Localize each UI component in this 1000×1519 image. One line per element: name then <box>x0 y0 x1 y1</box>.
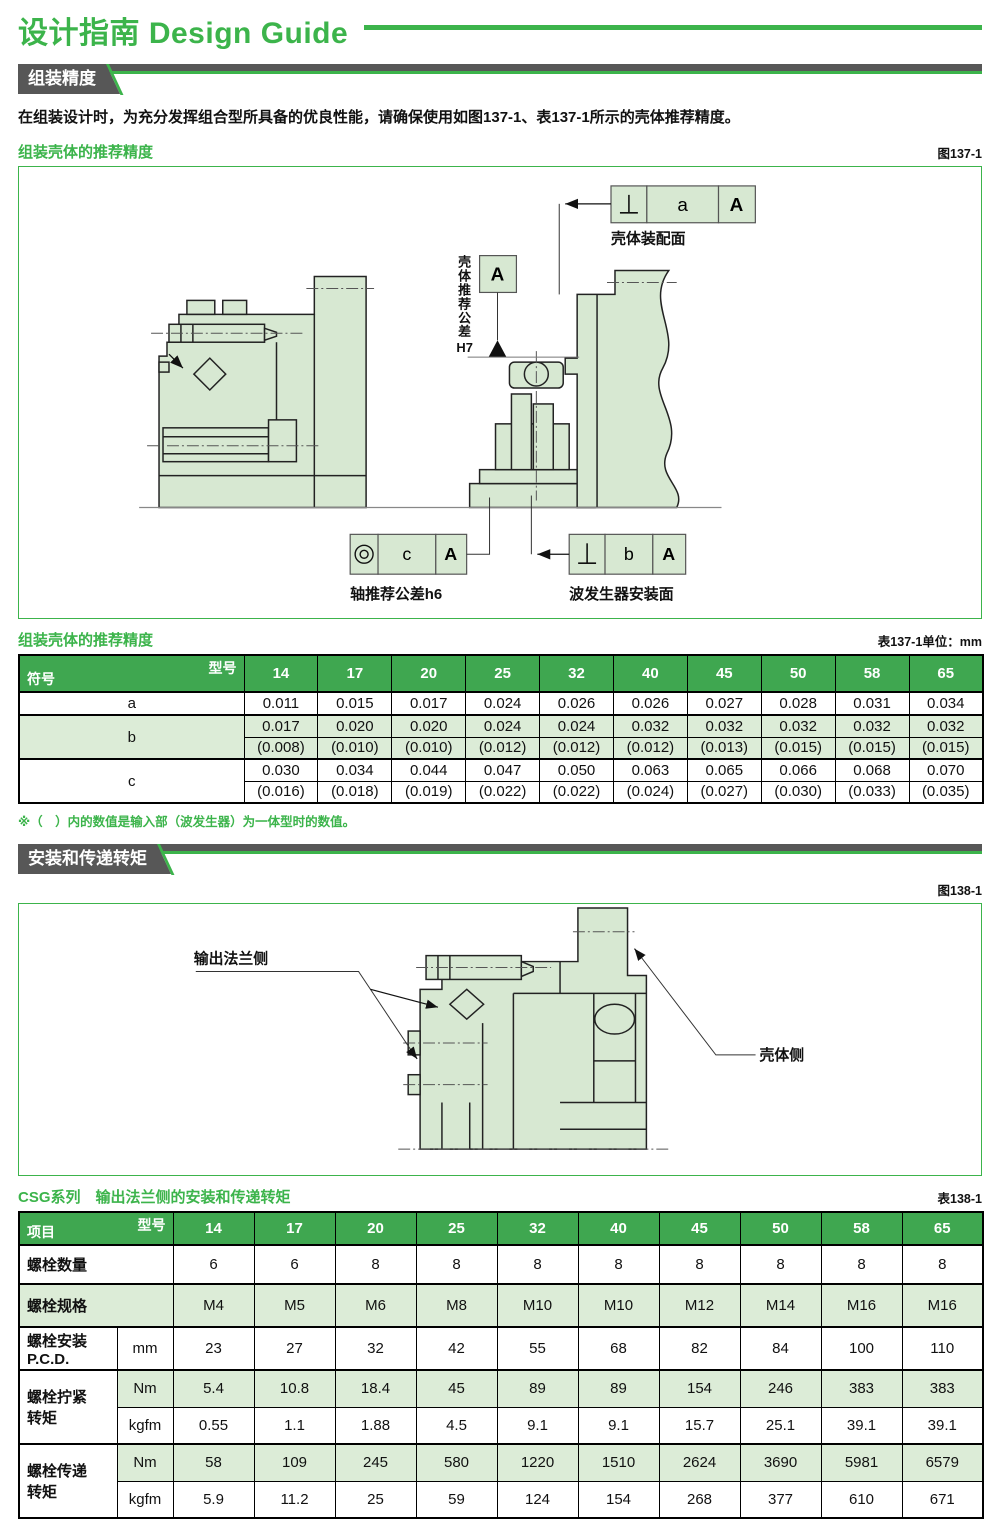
table-cell: kgfm <box>117 1407 173 1444</box>
figure137-box: a A 壳体装配面 A 壳体推荐公差 H7 c A 轴推荐公差h6 <box>18 166 982 619</box>
title-rule <box>364 25 982 30</box>
table-cell: 383 <box>821 1370 902 1407</box>
table-row: c0.0300.0340.0440.0470.0500.0630.0650.06… <box>19 759 983 781</box>
table-cell: 螺栓规格 <box>19 1284 173 1327</box>
table-row: 螺栓拧紧转矩Nm5.410.818.4458989154246383383 <box>19 1370 983 1407</box>
table-cell: 0.024 <box>540 715 614 737</box>
table-cell: mm <box>117 1327 173 1370</box>
table-cell: 268 <box>659 1481 740 1518</box>
table-cell: Nm <box>117 1444 173 1481</box>
table-cell: 0.55 <box>173 1407 254 1444</box>
table-cell: M16 <box>902 1284 983 1327</box>
table-cell: (0.024) <box>613 781 687 803</box>
table-cell: (0.012) <box>466 737 540 759</box>
table-cell: 0.034 <box>318 759 392 781</box>
table-cell: 8 <box>740 1245 821 1284</box>
table-cell: 65 <box>902 1212 983 1245</box>
table-cell: 8 <box>821 1245 902 1284</box>
table-cell: 8 <box>659 1245 740 1284</box>
table-cell: 1510 <box>578 1444 659 1481</box>
table-cell: kgfm <box>117 1481 173 1518</box>
figure138-headrow: 图138-1 <box>18 880 982 899</box>
table-137-1: 型号 符号14172025324045505865a0.0110.0150.01… <box>18 654 984 804</box>
table-cell: M10 <box>497 1284 578 1327</box>
table-cell: (0.010) <box>392 737 466 759</box>
datum-letter: A <box>730 195 744 216</box>
intro-paragraph: 在组装设计时，为充分发挥组合型所具备的优良性能，请确保使用如图137-1、表13… <box>18 106 982 127</box>
table-cell: 0.050 <box>540 759 614 781</box>
table-cell: 50 <box>740 1212 821 1245</box>
table-cell: 0.031 <box>835 692 909 715</box>
table-cell: 1.88 <box>335 1407 416 1444</box>
table-cell: 82 <box>659 1327 740 1370</box>
datum-letter: A <box>444 544 457 564</box>
table-cell: 23 <box>173 1327 254 1370</box>
table-row: 螺栓安装P.C.D.mm2327324255688284100110 <box>19 1327 983 1370</box>
model-header-row: 型号 符号14172025324045505865 <box>19 655 983 692</box>
table-cell: (0.030) <box>761 781 835 803</box>
table-cell: 8 <box>335 1245 416 1284</box>
datum-letter: A <box>662 544 675 564</box>
banner-bar <box>18 64 982 71</box>
table-cell: 20 <box>392 655 466 692</box>
table-cell: 671 <box>902 1481 983 1518</box>
table-cell: 55 <box>497 1327 578 1370</box>
table-cell: 109 <box>254 1444 335 1481</box>
table-cell: 0.026 <box>613 692 687 715</box>
table-cell: 0.068 <box>835 759 909 781</box>
table-cell: (0.012) <box>540 737 614 759</box>
banner-label: 组装精度 <box>18 64 106 94</box>
table-row: kgfm5.911.22559124154268377610671 <box>19 1481 983 1518</box>
callout-b-label: 波发生器安装面 <box>569 585 674 603</box>
table-cell: (0.016) <box>244 781 318 803</box>
table-cell: 45 <box>416 1370 497 1407</box>
table-cell: 0.032 <box>909 715 983 737</box>
table-cell: 8 <box>902 1245 983 1284</box>
table-cell: 0.032 <box>835 715 909 737</box>
table-cell: a <box>19 692 244 715</box>
table-cell: M8 <box>416 1284 497 1327</box>
table-cell: 螺栓拧紧转矩 <box>19 1370 117 1444</box>
table-cell: 59 <box>416 1481 497 1518</box>
table137-note: ※（ ）内的数值是输入部（波发生器）为一体型时的数值。 <box>18 811 982 830</box>
table-cell: 15.7 <box>659 1407 740 1444</box>
table-cell: 25 <box>416 1212 497 1245</box>
table-cell: 84 <box>740 1327 821 1370</box>
table-cell: 0.017 <box>244 715 318 737</box>
table-cell: 39.1 <box>821 1407 902 1444</box>
housing-wall-section <box>565 271 679 508</box>
banner-green-line <box>18 71 982 74</box>
table-cell: 螺栓传递转矩 <box>19 1444 117 1518</box>
table-cell: 0.032 <box>613 715 687 737</box>
callout-a-label: 壳体装配面 <box>610 230 686 248</box>
table-cell: 17 <box>254 1212 335 1245</box>
page-title: 设计指南 Design Guide <box>18 8 348 52</box>
table-cell: 124 <box>497 1481 578 1518</box>
table-cell: 8 <box>416 1245 497 1284</box>
table-cell: (0.015) <box>761 737 835 759</box>
figure137-drawing: a A 壳体装配面 A 壳体推荐公差 H7 c A 轴推荐公差h6 <box>19 167 980 613</box>
housing-tolerance-suffix: H7 <box>456 340 473 355</box>
table-138-1: 型号 项目14172025324045505865螺栓数量6688888888螺… <box>18 1211 984 1519</box>
table-cell: (0.008) <box>244 737 318 759</box>
table-cell: M12 <box>659 1284 740 1327</box>
table-cell: 0.024 <box>466 715 540 737</box>
table-cell: 10.8 <box>254 1370 335 1407</box>
figure138-box: 输出法兰侧 壳体侧 <box>18 903 982 1176</box>
table137-label: 表137-1单位：mm <box>878 631 982 650</box>
table-cell: 377 <box>740 1481 821 1518</box>
table-cell: (0.022) <box>540 781 614 803</box>
table-cell: 246 <box>740 1370 821 1407</box>
tolerance-letter: b <box>624 544 634 564</box>
table-cell: 18.4 <box>335 1370 416 1407</box>
table-cell: 6 <box>173 1245 254 1284</box>
table-cell: 1220 <box>497 1444 578 1481</box>
datum-a-group: A 壳体推荐公差 H7 <box>456 255 579 358</box>
table-cell: 0.027 <box>687 692 761 715</box>
table138-label: 表138-1 <box>938 1188 982 1207</box>
table-cell: 螺栓数量 <box>19 1245 173 1284</box>
table-cell: 5.9 <box>173 1481 254 1518</box>
table-cell: 32 <box>497 1212 578 1245</box>
table-cell: (0.015) <box>909 737 983 759</box>
table-cell: 25 <box>335 1481 416 1518</box>
figure138-label: 图138-1 <box>938 880 982 899</box>
table137-headrow: 组装壳体的推荐精度 表137-1单位：mm <box>18 629 982 650</box>
table-cell: 40 <box>613 655 687 692</box>
table-cell: Nm <box>117 1370 173 1407</box>
table-cell: 0.034 <box>909 692 983 715</box>
table-cell: 0.066 <box>761 759 835 781</box>
table-cell: 4.5 <box>416 1407 497 1444</box>
table-cell: 40 <box>578 1212 659 1245</box>
table-cell: (0.019) <box>392 781 466 803</box>
table-cell: 42 <box>416 1327 497 1370</box>
table-cell: M14 <box>740 1284 821 1327</box>
table-cell: 58 <box>173 1444 254 1481</box>
housing-tolerance-vertical-text: 壳体推荐公差 <box>457 255 472 340</box>
table-cell: 45 <box>659 1212 740 1245</box>
table-cell: 65 <box>909 655 983 692</box>
table-cell: 0.030 <box>244 759 318 781</box>
table-cell: 25.1 <box>740 1407 821 1444</box>
table138-headrow: CSG系列 输出法兰侧的安装和传递转矩 表138-1 <box>18 1186 982 1207</box>
leader-line <box>638 954 755 1055</box>
table-cell: 32 <box>335 1327 416 1370</box>
corner-cell: 型号 符号 <box>19 655 244 692</box>
table-cell: 154 <box>659 1370 740 1407</box>
callout-c-label: 轴推荐公差h6 <box>350 585 442 603</box>
table-cell: 45 <box>687 655 761 692</box>
banner-label: 安装和传递转矩 <box>18 844 157 874</box>
table-cell: M5 <box>254 1284 335 1327</box>
datum-triangle-icon <box>489 340 507 357</box>
table-cell: 245 <box>335 1444 416 1481</box>
table-cell: 0.070 <box>909 759 983 781</box>
gearbox-cross-section <box>408 908 646 1149</box>
table-cell: 89 <box>578 1370 659 1407</box>
housing-side-label: 壳体侧 <box>759 1046 805 1064</box>
table-cell: 0.044 <box>392 759 466 781</box>
assembled-unit-section <box>159 277 366 508</box>
table-cell: 9.1 <box>578 1407 659 1444</box>
section-banner-mounting: 安装和传递转矩 <box>18 844 982 874</box>
callout-frame-b: b A 波发生器安装面 <box>531 496 685 604</box>
section-banner-assembly: 组装精度 <box>18 64 982 94</box>
table-row: 螺栓传递转矩Nm58109245580122015102624369059816… <box>19 1444 983 1481</box>
corner-bottom-label: 项目 <box>27 1222 55 1242</box>
table-cell: 39.1 <box>902 1407 983 1444</box>
corner-cell: 型号 项目 <box>19 1212 173 1245</box>
table-cell: (0.018) <box>318 781 392 803</box>
corner-bottom-label: 符号 <box>27 669 55 689</box>
table-cell: 3690 <box>740 1444 821 1481</box>
table-cell: 0.047 <box>466 759 540 781</box>
table-cell: 383 <box>902 1370 983 1407</box>
wave-generator-section <box>470 362 595 507</box>
datum-box-letter: A <box>491 264 505 285</box>
table-cell: 14 <box>173 1212 254 1245</box>
table-cell: 9.1 <box>497 1407 578 1444</box>
table-cell: c <box>19 759 244 803</box>
leader-line <box>196 971 414 1054</box>
table-cell: 8 <box>497 1245 578 1284</box>
table-row: 螺栓规格M4M5M6M8M10M10M12M14M16M16 <box>19 1284 983 1327</box>
table-cell: 6 <box>254 1245 335 1284</box>
catalog-page: { "page": { "title": "设计指南 Design Guide"… <box>0 0 1000 1465</box>
table-cell: 25 <box>466 655 540 692</box>
output-flange-side-label: 输出法兰侧 <box>194 950 268 968</box>
table-cell: 螺栓安装P.C.D. <box>19 1327 117 1370</box>
table-cell: 580 <box>416 1444 497 1481</box>
table-cell: M4 <box>173 1284 254 1327</box>
table-cell: 0.032 <box>761 715 835 737</box>
table-cell: (0.033) <box>835 781 909 803</box>
table-row: 螺栓数量6688888888 <box>19 1245 983 1284</box>
table-cell: 11.2 <box>254 1481 335 1518</box>
table138-title: CSG系列 输出法兰侧的安装和传递转矩 <box>18 1186 291 1207</box>
table-row: kgfm0.551.11.884.59.19.115.725.139.139.1 <box>19 1407 983 1444</box>
table-cell: 1.1 <box>254 1407 335 1444</box>
table-cell: 0.024 <box>466 692 540 715</box>
table-cell: 0.015 <box>318 692 392 715</box>
table-cell: M16 <box>821 1284 902 1327</box>
table-cell: 14 <box>244 655 318 692</box>
table-cell: 5981 <box>821 1444 902 1481</box>
table-cell: (0.027) <box>687 781 761 803</box>
table-cell: 20 <box>335 1212 416 1245</box>
figure138-drawing: 输出法兰侧 壳体侧 <box>19 904 980 1170</box>
table-cell: (0.010) <box>318 737 392 759</box>
table-cell: 2624 <box>659 1444 740 1481</box>
table-cell: 0.063 <box>613 759 687 781</box>
table-cell: 32 <box>540 655 614 692</box>
model-header-row: 型号 项目14172025324045505865 <box>19 1212 983 1245</box>
table-cell: 0.065 <box>687 759 761 781</box>
table-cell: 0.020 <box>318 715 392 737</box>
table-cell: (0.022) <box>466 781 540 803</box>
table-cell: 17 <box>318 655 392 692</box>
table-cell: (0.015) <box>835 737 909 759</box>
table-cell: 100 <box>821 1327 902 1370</box>
tolerance-letter: a <box>677 195 688 216</box>
table-cell: 0.026 <box>540 692 614 715</box>
table-cell: 58 <box>835 655 909 692</box>
table-cell: 50 <box>761 655 835 692</box>
table-cell: (0.012) <box>613 737 687 759</box>
table-cell: (0.013) <box>687 737 761 759</box>
leader-arrow <box>634 949 638 954</box>
table-cell: b <box>19 715 244 759</box>
table-cell: M6 <box>335 1284 416 1327</box>
table-cell: 154 <box>578 1481 659 1518</box>
table-cell: 58 <box>821 1212 902 1245</box>
figure137-title: 组装壳体的推荐精度 <box>18 141 153 162</box>
table-row: a0.0110.0150.0170.0240.0260.0260.0270.02… <box>19 692 983 715</box>
table-cell: 27 <box>254 1327 335 1370</box>
table137-title: 组装壳体的推荐精度 <box>18 629 153 650</box>
table-cell: 0.017 <box>392 692 466 715</box>
bearing-ball <box>595 1004 635 1034</box>
table-cell: 5.4 <box>173 1370 254 1407</box>
table-cell: 0.020 <box>392 715 466 737</box>
table-cell: 6579 <box>902 1444 983 1481</box>
table-cell: 68 <box>578 1327 659 1370</box>
figure137-label: 图137-1 <box>938 143 982 162</box>
table-cell: 8 <box>578 1245 659 1284</box>
table-cell: M10 <box>578 1284 659 1327</box>
table-cell: 0.032 <box>687 715 761 737</box>
tolerance-letter: c <box>402 544 411 564</box>
table-cell: 610 <box>821 1481 902 1518</box>
table-cell: 0.011 <box>244 692 318 715</box>
corner-top-label: 型号 <box>209 658 237 678</box>
table-cell: 89 <box>497 1370 578 1407</box>
table-row: b0.0170.0200.0200.0240.0240.0320.0320.03… <box>19 715 983 737</box>
figure137-headrow: 组装壳体的推荐精度 图137-1 <box>18 141 982 162</box>
callout-frame-c: c A 轴推荐公差h6 <box>350 498 489 604</box>
page-header: 设计指南 Design Guide <box>18 8 982 52</box>
table-cell: 110 <box>902 1327 983 1370</box>
corner-top-label: 型号 <box>138 1215 166 1235</box>
table-cell: (0.035) <box>909 781 983 803</box>
table-cell: 0.028 <box>761 692 835 715</box>
